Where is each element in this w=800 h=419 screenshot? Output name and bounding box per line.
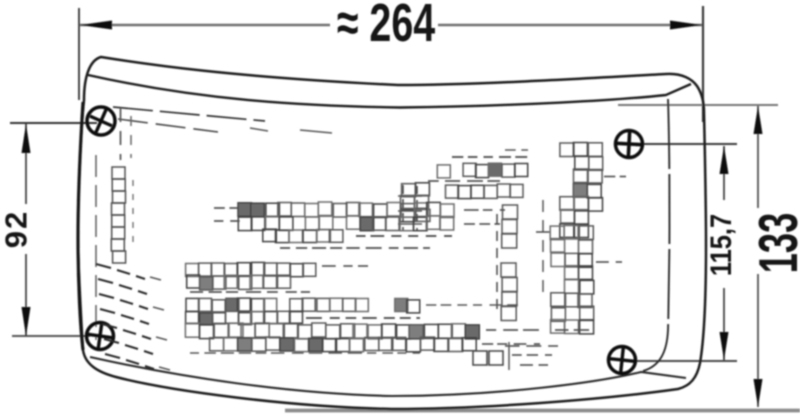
svg-text:≈ 264: ≈ 264 [337, 0, 436, 54]
svg-text:115,7: 115,7 [704, 214, 737, 276]
svg-text:133: 133 [747, 213, 800, 274]
svg-text:92: 92 [0, 210, 34, 248]
